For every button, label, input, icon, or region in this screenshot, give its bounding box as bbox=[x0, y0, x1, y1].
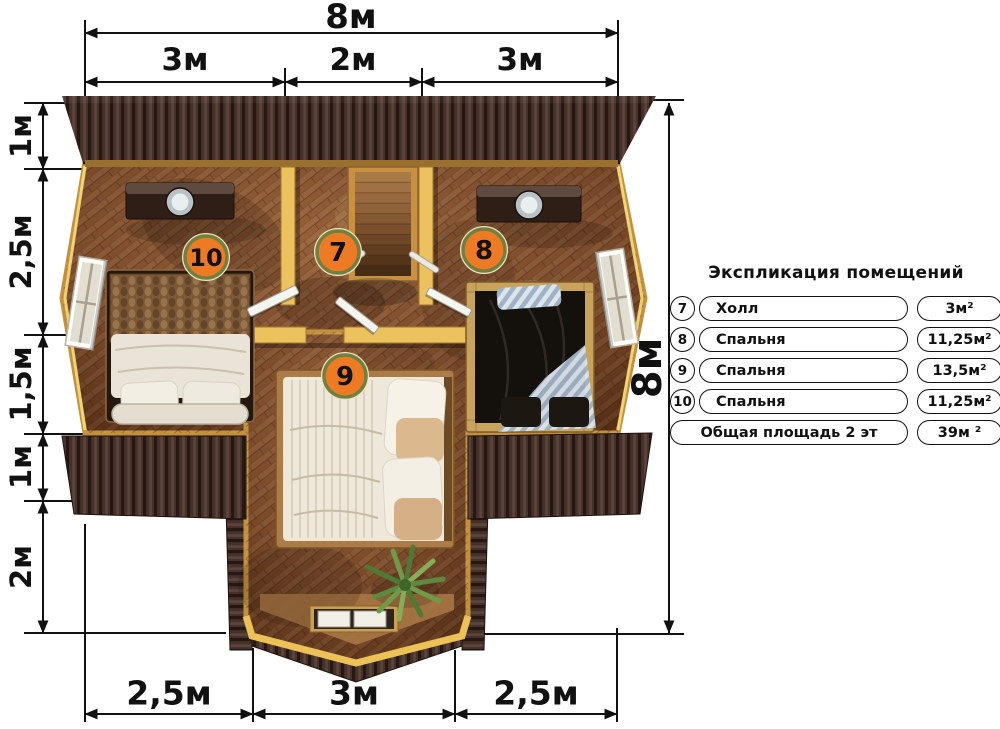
wall-shadow bbox=[295, 167, 300, 305]
legend-row-8: 8 Спальня 11,25м² bbox=[670, 327, 1000, 352]
wall-shadow bbox=[433, 167, 438, 305]
legend-row-number: 10 bbox=[670, 389, 695, 414]
window-bottom bbox=[310, 606, 398, 632]
dim-label-bottom-3: 2,5м bbox=[493, 674, 578, 713]
dim-label-left-5: 2м bbox=[4, 545, 38, 589]
dim-label-left-2: 2,5м bbox=[4, 214, 38, 289]
roof-top bbox=[62, 96, 656, 163]
badge-room10-label: 10 bbox=[189, 244, 222, 272]
floor-plan-page: 8м 3м 2м 3м 1м 2,5м 1,5м 1м 2м 8м 2,5м 3… bbox=[0, 0, 1000, 729]
badge-room7: 7 bbox=[315, 229, 361, 275]
legend-room-name: Спальня bbox=[699, 389, 908, 414]
wall-room9-top-right bbox=[344, 327, 468, 343]
legend-room-area: 11,25м² bbox=[917, 327, 1000, 352]
legend-room-name: Спальня bbox=[699, 327, 908, 352]
dim-label-top-1: 3м bbox=[162, 42, 209, 78]
dim-label-left-4: 1м bbox=[4, 445, 38, 489]
roof-top-ridge bbox=[62, 96, 656, 103]
dim-label-left-1: 1м bbox=[4, 114, 38, 158]
legend-title: Экспликация помещений bbox=[670, 263, 1000, 283]
legend-room-area: 11,25м² bbox=[917, 389, 1000, 414]
legend-row-9: 9 Спальня 13,5м² bbox=[670, 358, 1000, 383]
bed-room10 bbox=[106, 270, 254, 424]
wall-hall-room8 bbox=[419, 167, 433, 305]
legend-room-area: 13,5м² bbox=[917, 358, 1000, 383]
legend-total-area: 39м ² bbox=[917, 420, 1000, 445]
bed-headboard-woven bbox=[110, 274, 250, 342]
badge-room8-label: 8 bbox=[475, 236, 493, 266]
legend-room-area: 3м² bbox=[917, 296, 1000, 321]
roof-bottom-left bbox=[62, 436, 246, 519]
dim-label-top-2: 2м bbox=[330, 42, 377, 78]
badge-room9-label: 9 bbox=[336, 362, 354, 392]
legend-row-number: 8 bbox=[670, 327, 695, 352]
legend-room-name: Спальня bbox=[699, 358, 908, 383]
badge-room8: 8 bbox=[461, 227, 507, 273]
bed-cushion-tan bbox=[394, 498, 442, 540]
dim-label-bottom-1: 2,5м bbox=[126, 674, 211, 713]
roof-bottom-right bbox=[468, 433, 652, 519]
dim-label-top-total: 8м bbox=[325, 0, 376, 37]
legend-row-10: 10 Спальня 11,25м² bbox=[670, 389, 1000, 414]
bed-cushion bbox=[501, 397, 541, 427]
legend-row-number: 9 bbox=[670, 358, 695, 383]
bed-cushion-tan bbox=[396, 418, 444, 462]
bed-room9 bbox=[276, 370, 454, 548]
wall-top bbox=[85, 160, 618, 167]
wall-room10-hall bbox=[281, 167, 295, 305]
bed-striped-pillow bbox=[496, 284, 561, 310]
legend-table: Экспликация помещений 7 Холл 3м² 8 Спаль… bbox=[670, 263, 1000, 451]
legend-room-name: Холл bbox=[699, 296, 908, 321]
dim-label-left-3: 1,5м bbox=[4, 346, 38, 421]
bed-footboard bbox=[112, 404, 248, 424]
badge-room9: 9 bbox=[322, 353, 368, 399]
wall-room9-top-left bbox=[246, 327, 306, 343]
legend-row-number: 7 bbox=[670, 296, 695, 321]
badge-room10: 10 bbox=[183, 234, 229, 280]
building: 10 7 8 9 bbox=[62, 96, 656, 682]
legend-row-total: Общая площадь 2 эт 39м ² bbox=[670, 420, 1000, 445]
badge-room7-label: 7 bbox=[329, 238, 347, 268]
dim-label-top-3: 3м bbox=[497, 42, 544, 78]
legend-row-7: 7 Холл 3м² bbox=[670, 296, 1000, 321]
bed-room8 bbox=[466, 282, 596, 432]
legend-total-label: Общая площадь 2 эт bbox=[670, 420, 908, 445]
wall-shadow bbox=[246, 343, 468, 348]
bed-cushion bbox=[549, 397, 589, 427]
